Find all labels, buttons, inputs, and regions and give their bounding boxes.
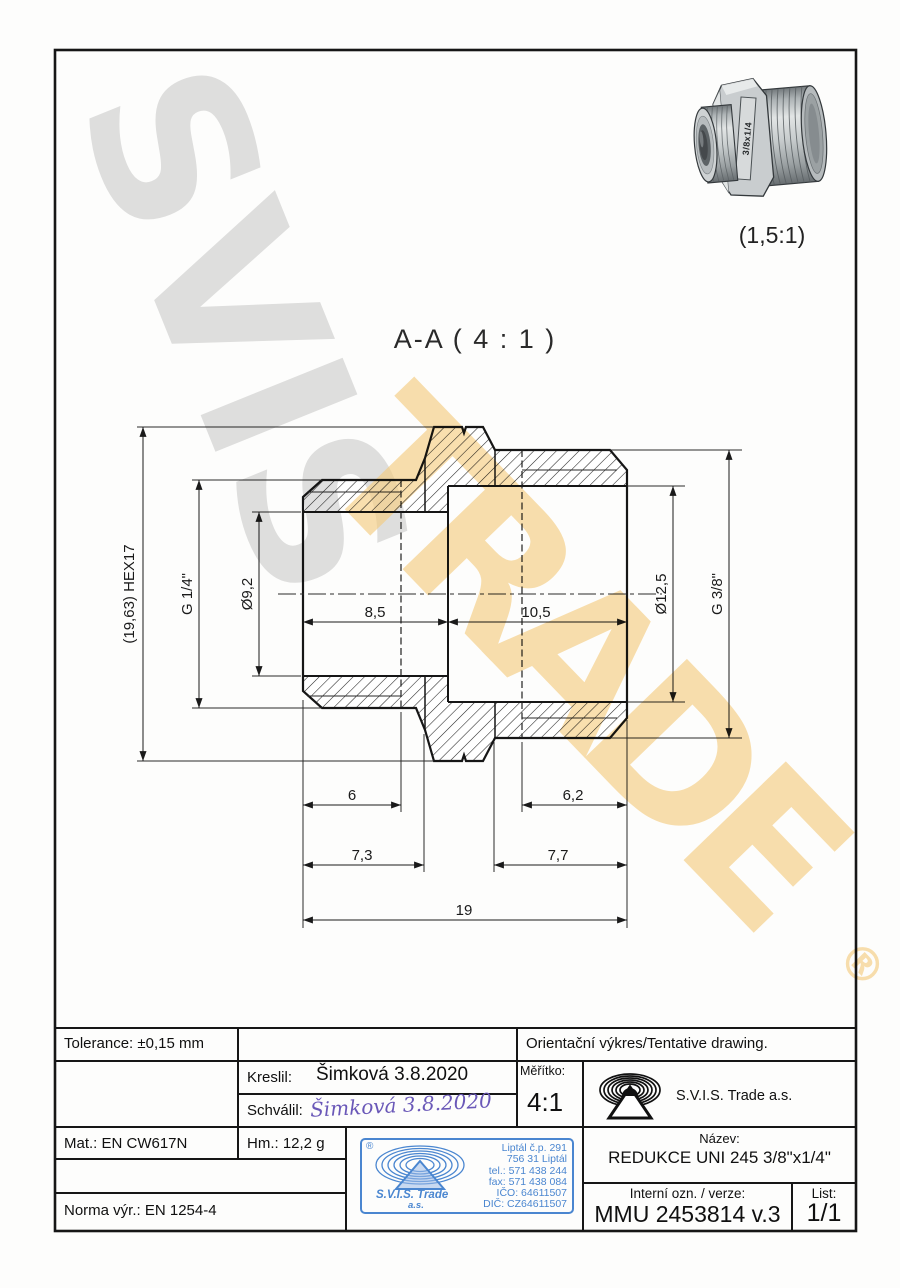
dim-8-5: 8,5 xyxy=(365,604,386,621)
dim-thread-left: G 1/4" xyxy=(179,573,196,615)
tolerance-text: Tolerance: ±0,15 mm xyxy=(64,1035,204,1052)
stamp-address-line: 756 31 Liptál xyxy=(483,1154,567,1165)
sheet-border xyxy=(55,50,856,1231)
meritko-label: Měřítko: xyxy=(520,1064,565,1078)
meritko-value: 4:1 xyxy=(527,1087,563,1118)
dim-6: 6 xyxy=(348,787,356,804)
weight-text: Hm.: 12,2 g xyxy=(247,1135,325,1152)
nazev-value: REDUKCE UNI 245 3/8"x1/4" xyxy=(583,1148,856,1168)
company-name: S.V.I.S. Trade a.s. xyxy=(676,1088,792,1104)
part-photo: 3/8x1/4 xyxy=(686,74,840,208)
drawing-sheet: (19,63) HEX17 G 1/4" Ø9,2 Ø12,5 G 3/8" 8… xyxy=(0,0,900,1288)
dim-19: 19 xyxy=(456,902,473,919)
nazev-label: Název: xyxy=(583,1131,856,1146)
interni-label: Interní ozn. / verze: xyxy=(583,1186,792,1201)
kreslil-value: Šimková 3.8.2020 xyxy=(316,1064,468,1086)
stamp-logo xyxy=(370,1145,480,1191)
schvalil-label: Schválil: xyxy=(247,1102,303,1119)
norma-text: Norma výr.: EN 1254-4 xyxy=(64,1202,217,1219)
stamp-address-line: DIČ: CZ64611507 xyxy=(483,1199,567,1210)
material-text: Mat.: EN CW617N xyxy=(64,1135,187,1152)
photo-scale-label: (1,5:1) xyxy=(739,222,805,248)
interni-value: MMU 2453814 v.3 xyxy=(583,1201,792,1228)
dim-hex-height: (19,63) HEX17 xyxy=(121,544,138,643)
orientacni-text: Orientační výkres/Tentative drawing. xyxy=(526,1035,768,1052)
stamp-address: Liptál č.p. 291 756 31 Liptál tel.: 571 … xyxy=(483,1143,567,1211)
list-value: 1/1 xyxy=(792,1199,856,1228)
company-stamp: ® S.V.I.S. Trade a.s. Liptál č.p. 291 75… xyxy=(360,1138,574,1214)
dim-6-2: 6,2 xyxy=(563,787,584,804)
section-view xyxy=(278,427,662,761)
dim-7-7: 7,7 xyxy=(548,847,569,864)
company-logo xyxy=(600,1074,660,1118)
dim-bore-right: Ø12,5 xyxy=(653,574,670,615)
section-label: A-A ( 4 : 1 ) xyxy=(394,324,557,354)
dim-7-3: 7,3 xyxy=(352,847,373,864)
dim-10-5: 10,5 xyxy=(521,604,550,621)
kreslil-label: Kreslil: xyxy=(247,1069,292,1086)
dim-thread-right: G 3/8" xyxy=(709,573,726,615)
dim-bore-left: Ø9,2 xyxy=(239,578,256,611)
stamp-as: a.s. xyxy=(408,1200,424,1211)
